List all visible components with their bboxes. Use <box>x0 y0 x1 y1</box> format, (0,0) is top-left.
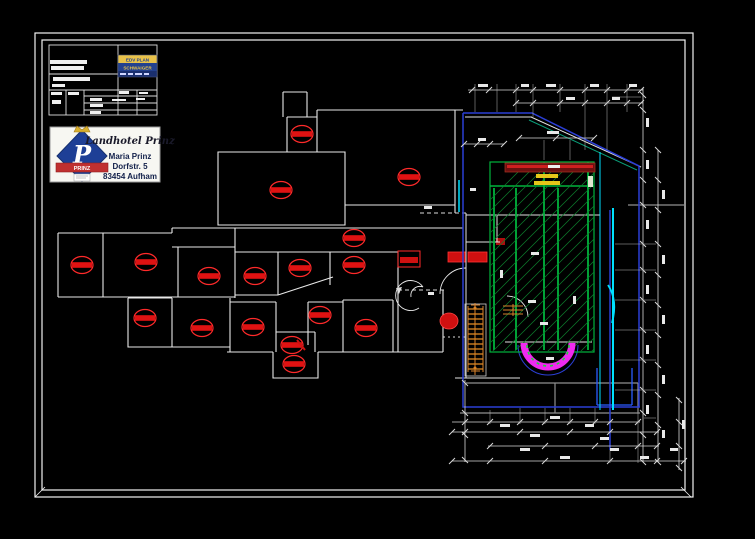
dimension-label-blob <box>547 131 559 134</box>
dimension-label-blob <box>590 84 599 87</box>
dimension-label-blob <box>600 437 609 440</box>
dimension-label-blob <box>560 456 570 459</box>
dimension-label-blob <box>640 456 649 459</box>
small-panel <box>588 176 593 187</box>
pool-steps-arc <box>524 343 572 367</box>
staircase-symbol <box>468 303 523 375</box>
stamp-contact-name: Maria Prinz <box>109 152 152 161</box>
yellow-label-1 <box>536 174 558 178</box>
dimension-label-blob <box>573 296 576 304</box>
dimension-label-blob <box>540 322 548 325</box>
stamp-script-name: Landhotel Prinz <box>84 136 175 147</box>
dimension-label-blob <box>528 300 536 303</box>
dimension-label-blob <box>530 434 540 437</box>
stamp-city: 83454 Aufham <box>103 172 157 181</box>
smoke-detector-symbol <box>198 268 220 285</box>
dimension-label-blob <box>662 375 665 384</box>
dimension-label-blob <box>646 405 649 414</box>
smoke-detector-symbol <box>343 230 365 247</box>
dimension-label-blob <box>629 84 637 87</box>
dimension-label-blob <box>500 270 503 278</box>
vendor-logo-line2: SCHWAIGER <box>123 65 152 70</box>
dimension-label-blob <box>610 448 619 451</box>
dimension-label-blob <box>670 448 678 451</box>
dimension-label-blob <box>478 84 488 87</box>
title-block: EDV PLAN SCHWAIGER <box>49 45 157 115</box>
dimension-label-blob <box>585 424 594 427</box>
dimension-label-blob <box>550 416 560 419</box>
spiral-stair-symbol <box>396 281 423 311</box>
vendor-logo: EDV PLAN SCHWAIGER <box>118 55 157 77</box>
yellow-label-2 <box>534 181 560 185</box>
dimension-label-blob <box>662 315 665 324</box>
vendor-logo-line1: EDV PLAN <box>126 57 150 62</box>
smoke-detector-symbol <box>135 254 157 271</box>
smoke-detector-symbol <box>309 307 331 324</box>
pool-building <box>330 110 755 450</box>
cyan-lines <box>459 152 614 410</box>
dimension-label-blob <box>612 97 620 100</box>
company-stamp: P PRINZ Landhotel Prinz Maria Prinz Dorf… <box>50 126 175 182</box>
dimension-label-blob <box>646 118 649 127</box>
dimension-label-blob <box>500 424 510 427</box>
smoke-detector-symbol <box>343 257 365 274</box>
smoke-detector-symbol <box>244 268 266 285</box>
stamp-street: Dorfstr. 5 <box>112 162 148 171</box>
dimension-label-blob <box>521 84 529 87</box>
smoke-detector-symbol <box>289 260 311 277</box>
dimension-label-blob <box>646 220 649 229</box>
dimension-label-blob <box>646 160 649 169</box>
dimension-label-blob <box>531 252 539 255</box>
dimension-label-blob <box>520 448 530 451</box>
stamp-band-text: PRINZ <box>74 166 91 172</box>
smoke-detector-symbol <box>134 310 156 327</box>
smoke-detector-symbol <box>283 356 305 373</box>
dimension-label-blob <box>662 190 665 199</box>
dimension-label-blob <box>646 285 649 294</box>
dimension-label-blob <box>662 430 665 438</box>
smoke-detector-symbol <box>398 169 420 186</box>
cad-application-canvas: EDV PLAN SCHWAIGER P PRINZ Landhotel Pri… <box>0 0 755 539</box>
smoke-detector-symbol <box>191 320 213 337</box>
pool-hatch <box>330 160 755 360</box>
walls-upper <box>218 92 455 225</box>
smoke-detector-symbol <box>242 319 264 336</box>
dimension-label-blob <box>424 206 432 209</box>
dimension-label-blob <box>428 292 434 295</box>
cad-sheet[interactable]: EDV PLAN SCHWAIGER P PRINZ Landhotel Pri… <box>0 0 755 539</box>
dimension-label-blob <box>566 97 575 100</box>
smoke-detector-symbol <box>281 337 303 354</box>
dimension-label-blob <box>546 357 554 360</box>
dimension-label-blob <box>470 188 476 191</box>
dimension-label-blob <box>546 84 556 87</box>
dimension-label-blob <box>682 420 685 429</box>
mini-ladder-symbol <box>503 304 523 316</box>
smoke-detector-symbol <box>270 182 292 199</box>
dimension-label-blob <box>662 255 665 264</box>
pool-header-band <box>505 163 595 187</box>
smoke-detector-symbol <box>291 126 313 143</box>
red-special-symbols <box>297 238 505 350</box>
smoke-detector-symbol <box>355 320 377 337</box>
dimension-label-blob <box>478 138 486 141</box>
smoke-detector-symbol <box>71 257 93 274</box>
dimension-label-blob <box>646 345 649 354</box>
